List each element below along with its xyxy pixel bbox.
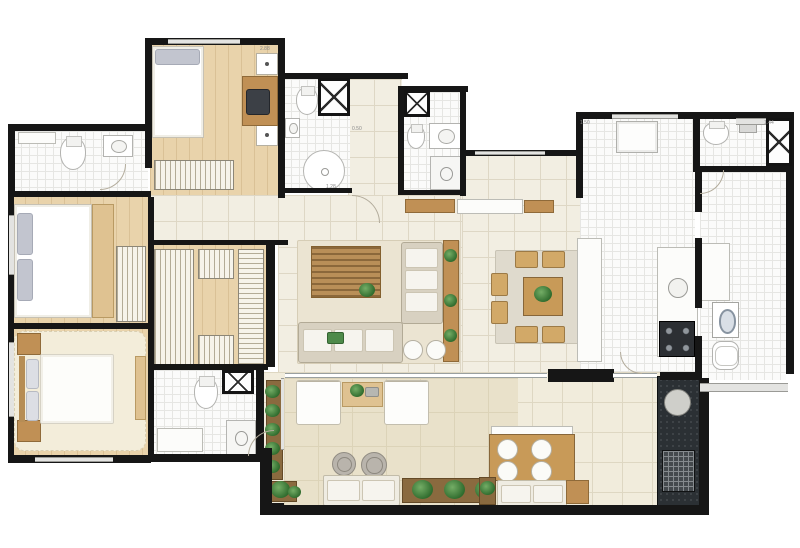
lounge-chair xyxy=(384,380,429,425)
corridor-bedroom1-floor xyxy=(150,195,278,242)
toilet xyxy=(296,87,318,115)
wall-bench xyxy=(135,356,146,420)
master-pillow xyxy=(26,359,39,389)
sideboard xyxy=(457,199,523,214)
ventilation-shaft xyxy=(222,370,254,394)
window xyxy=(475,151,545,155)
plant xyxy=(265,385,280,398)
floor-plan: 2.880.501.281.501.44 xyxy=(0,0,800,548)
wall xyxy=(8,323,151,329)
wall xyxy=(148,197,154,460)
grill xyxy=(662,450,695,492)
cushion xyxy=(327,480,360,501)
side-table xyxy=(566,480,589,504)
bed-2-pillow xyxy=(17,213,33,255)
dining-chair xyxy=(542,326,565,343)
wall xyxy=(400,190,466,195)
closet-wardrobe xyxy=(238,249,264,365)
dining-chair xyxy=(515,326,538,343)
wall xyxy=(145,38,152,168)
closet-wardrobe xyxy=(198,335,234,365)
plant xyxy=(534,286,552,302)
plant xyxy=(444,329,457,342)
cushion xyxy=(405,292,438,312)
window xyxy=(281,378,284,450)
kitchen-sink xyxy=(668,278,688,298)
plant xyxy=(480,481,495,495)
toilet xyxy=(407,125,425,149)
wardrobe xyxy=(116,246,146,322)
plant xyxy=(412,480,433,499)
window xyxy=(9,215,14,275)
corridor-top-floor xyxy=(348,79,402,199)
sink xyxy=(285,118,300,138)
master-pillow xyxy=(26,391,39,421)
bath-shelf xyxy=(18,132,56,144)
window xyxy=(700,383,788,392)
headboard xyxy=(19,356,25,422)
foot-bench xyxy=(92,204,114,318)
plant xyxy=(350,384,364,397)
plant xyxy=(288,486,301,498)
sideboard xyxy=(524,200,554,213)
desk-chair xyxy=(246,89,270,115)
dining-chair xyxy=(542,251,565,268)
wall xyxy=(693,115,700,172)
sink xyxy=(103,135,133,157)
window xyxy=(168,39,240,44)
side-table xyxy=(403,340,423,360)
bed-2-pillow xyxy=(17,259,33,301)
wall xyxy=(8,124,15,197)
cushion xyxy=(405,270,438,290)
wall xyxy=(699,378,709,508)
wall xyxy=(8,124,148,131)
toilet xyxy=(194,377,218,409)
green-pillow xyxy=(327,332,344,344)
wall xyxy=(278,41,285,198)
laundry-tub xyxy=(712,341,739,370)
vanity xyxy=(157,428,203,452)
plant xyxy=(359,283,375,297)
plant xyxy=(444,249,457,262)
cushion xyxy=(362,480,395,501)
window xyxy=(9,342,14,417)
closet-wardrobe xyxy=(154,249,194,365)
window xyxy=(35,457,113,462)
wall xyxy=(260,503,284,515)
lounge-chair xyxy=(296,380,341,425)
ventilation-shaft xyxy=(318,78,350,116)
stove xyxy=(659,321,695,357)
ventilation-shaft xyxy=(404,90,430,117)
wall xyxy=(8,191,151,197)
barbecue-sink xyxy=(664,389,691,416)
side-table xyxy=(426,340,446,360)
pouf xyxy=(332,452,356,476)
sliding-glass-door xyxy=(613,373,657,378)
closet-wardrobe xyxy=(198,249,234,279)
window xyxy=(612,114,678,119)
wall xyxy=(266,241,275,367)
cushion xyxy=(405,248,438,268)
wall xyxy=(548,369,614,382)
plant xyxy=(271,481,290,498)
nightstand xyxy=(256,124,278,146)
dimension-label: 1.50 xyxy=(580,120,602,126)
nightstand xyxy=(256,53,278,75)
wardrobe xyxy=(154,160,234,190)
place-setting xyxy=(531,439,552,460)
wall xyxy=(460,90,466,196)
sliding-glass-door xyxy=(285,373,547,378)
sink xyxy=(429,123,461,149)
plant xyxy=(444,294,457,307)
wall xyxy=(695,238,702,308)
toilet xyxy=(703,122,729,145)
dimension-label: 0.50 xyxy=(352,126,374,132)
fridge xyxy=(616,121,658,153)
shower xyxy=(430,156,461,190)
cushion xyxy=(501,485,531,503)
wall xyxy=(148,454,264,462)
cushion xyxy=(365,329,394,352)
wall xyxy=(660,372,700,380)
wall xyxy=(260,448,272,508)
bed-1-pillow xyxy=(155,49,200,65)
place-setting xyxy=(497,439,518,460)
dining-chair xyxy=(491,273,508,296)
wall xyxy=(262,505,709,515)
dimension-label: 1.28 xyxy=(326,184,348,190)
wall xyxy=(695,336,702,378)
nightstand-wood xyxy=(17,420,41,442)
nightstand-wood xyxy=(17,333,41,355)
dimension-label: 2.88 xyxy=(260,46,282,52)
place-setting xyxy=(497,461,518,482)
service-cabinet xyxy=(698,243,730,301)
master-bed xyxy=(40,354,114,424)
plant xyxy=(265,404,280,417)
sideboard xyxy=(405,199,455,213)
tray xyxy=(365,387,379,397)
plant xyxy=(444,480,465,499)
cushion xyxy=(533,485,563,503)
dining-chair xyxy=(491,301,508,324)
place-setting xyxy=(531,461,552,482)
toilet xyxy=(60,137,86,170)
kitchen-island xyxy=(577,238,602,362)
dimension-label: 1.44 xyxy=(764,120,786,126)
dining-chair xyxy=(515,251,538,268)
washer xyxy=(712,302,739,338)
